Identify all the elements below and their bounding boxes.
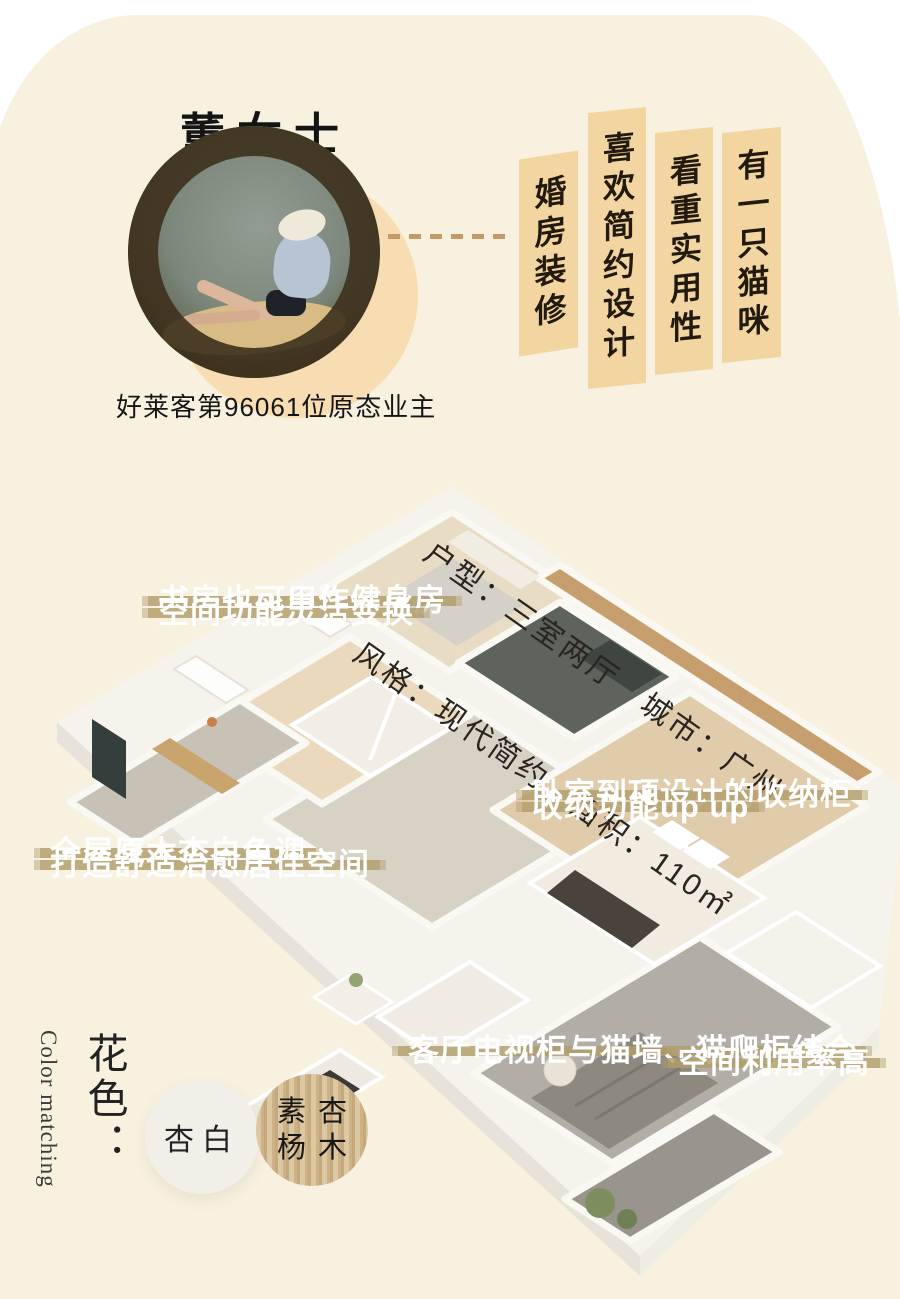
swatch-apricot-white: 杏白 [145, 1080, 259, 1194]
annotation-color-tone: 全屋原木杏白色调 打造舒适治愈居住空间 [40, 848, 380, 872]
avatar-figure [186, 309, 261, 325]
kitchen-dish [207, 717, 217, 727]
avatar-figure [275, 205, 329, 246]
color-matching-label-en: Color matching [35, 1030, 61, 1188]
tag-likes-minimal-design: 喜欢简约设计 [588, 107, 646, 389]
poster-canvas: 董女士 好莱客第96061位原态业主 婚房装修 喜欢简约设计 看重实用性 有一只… [0, 0, 900, 1299]
tag-wedding-renovation: 婚房装修 [519, 150, 578, 356]
color-matching-label-cn: 花色： [74, 1032, 134, 1167]
avatar-figure [266, 290, 306, 316]
annotation-living-room-cat-wall: 客厅电视柜与猫墙、猫爬柜结合 空间利用率高 [398, 1046, 880, 1070]
annotation-bedroom-storage: 卧室到顶设计的收纳柜 收纳功能up up [522, 790, 862, 814]
swatch-label: 杏白 [164, 1115, 240, 1159]
annotation-line: 收纳功能up up [522, 802, 759, 812]
swatch-plain-apricot-poplar: 素杏 杨木 [256, 1074, 368, 1186]
annotation-line: 空间功能灵活变换 [148, 608, 424, 618]
annotation-study: 书房也可用作健身房 空间功能灵活变换 [148, 596, 456, 620]
annotation-line: 空间利用率高 [668, 1058, 880, 1068]
tag-values-practicality: 看重实用性 [655, 127, 713, 375]
dashed-connector-line [388, 234, 514, 239]
balcony-plant [585, 1188, 615, 1218]
owner-caption: 好莱客第96061位原态业主 [116, 387, 436, 424]
tag-has-a-cat: 有一只猫咪 [722, 127, 781, 363]
flower-vase [349, 973, 363, 987]
swatch-label-line2: 杨木 [265, 1130, 359, 1166]
avatar-figure [195, 278, 275, 323]
annotation-line: 打造舒适治愈居住空间 [40, 860, 380, 870]
balcony-plant [617, 1209, 637, 1229]
swatch-label-line1: 素杏 [265, 1094, 359, 1130]
avatar-figure [271, 229, 334, 300]
owner-avatar-photo [128, 126, 380, 378]
avatar-straw-seat [160, 294, 348, 362]
